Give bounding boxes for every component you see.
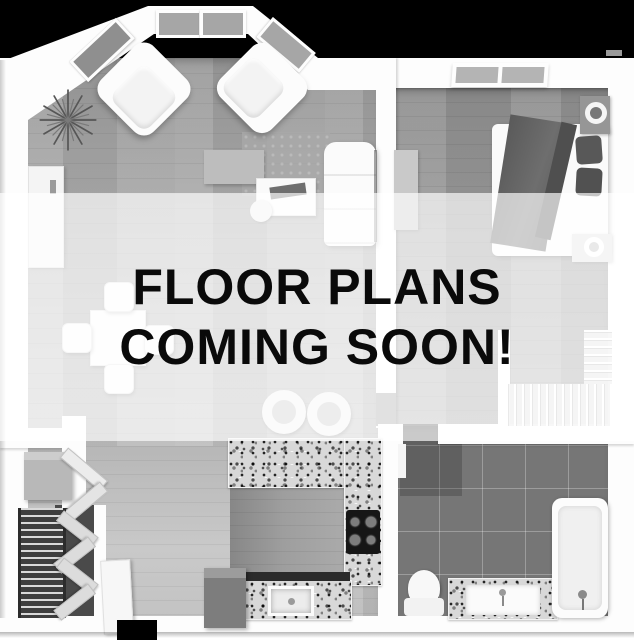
speaker-icon	[585, 102, 607, 124]
bedroom-window-pane-left	[455, 67, 498, 83]
kitchen-counter-top	[228, 438, 360, 488]
sink-drain-icon	[288, 598, 295, 605]
tub-faucet-stem	[582, 599, 584, 610]
vanity-faucet-icon	[499, 589, 506, 596]
toilet-tank	[404, 598, 444, 616]
bottom-edge-shadow	[0, 632, 634, 638]
bedroom-window	[451, 63, 549, 87]
bay-window-top-1	[156, 10, 202, 38]
plant-icon	[36, 88, 100, 152]
overlay-text-line2: COMING SOON!	[119, 317, 514, 377]
overlay-text-line1: FLOOR PLANS	[132, 257, 501, 317]
kitchen-floor	[230, 486, 348, 580]
shower-door	[398, 444, 406, 478]
bay-window-top-2	[200, 10, 246, 38]
kitchen-cart	[204, 568, 246, 628]
tv-sideboard	[204, 150, 264, 184]
door-handle	[50, 180, 56, 194]
bedroom-window-pane-right	[501, 67, 544, 83]
tub-faucet-icon	[578, 590, 587, 599]
vanity-faucet-stem	[502, 596, 504, 606]
coming-soon-overlay: FLOOR PLANS COMING SOON!	[0, 193, 634, 441]
cooktop	[346, 510, 380, 554]
wall-vent	[606, 50, 622, 56]
pillow-top	[575, 135, 603, 165]
floor-plan-placeholder-image: FLOOR PLANS COMING SOON!	[0, 0, 634, 640]
